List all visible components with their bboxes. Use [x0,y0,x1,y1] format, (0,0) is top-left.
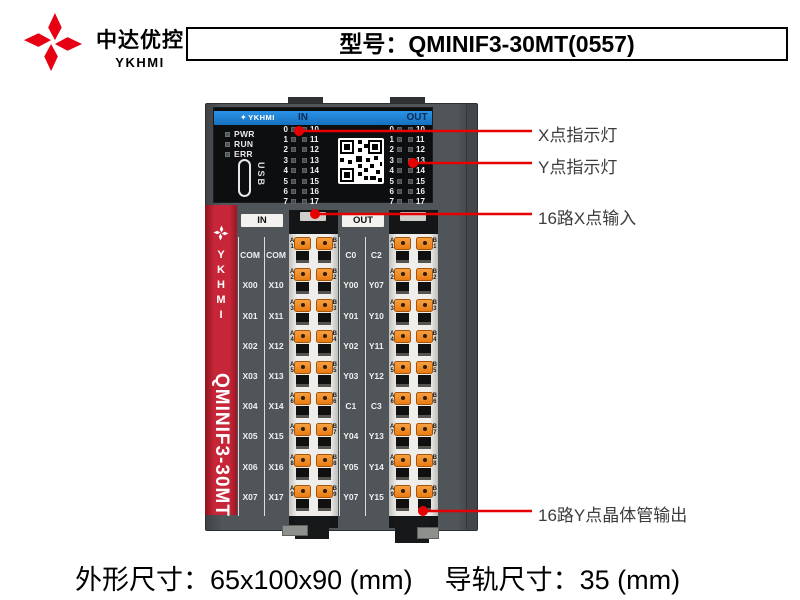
wire-clamp [316,299,333,329]
terminal-label-row: Y07 Y15 [338,482,389,512]
terminal-pin-label: B1 [433,239,437,250]
terminal-row: A5 B5 [389,360,438,391]
clamp-lever [416,454,433,467]
terminal-label: Y10 [364,311,390,321]
wire-clamp [416,299,433,329]
terminal-pin-label: A1 [390,239,394,250]
wire-clamp [294,361,311,391]
clamp-release-dot [323,334,327,338]
led-indicator-icon [291,168,296,173]
wire-hole [318,251,331,263]
terminal-label: COM [237,250,263,260]
led-indicator-icon [291,199,296,204]
wire-clamp [394,299,411,329]
led-number: 10 [416,125,432,134]
terminal-pin-label: B2 [433,270,437,281]
wire-clamp [294,423,311,453]
clamp-lever [294,299,311,312]
clamp-release-dot [323,396,327,400]
led-row: 2 12 [276,146,326,154]
terminal-label-row: X07 X17 [237,482,289,512]
led-indicator-icon [291,137,296,142]
led-number: 3 [382,156,394,165]
terminal-pin-label: A7 [290,425,294,436]
terminal-label-row: Y05 Y14 [338,452,389,482]
terminal-pin-label: B6 [433,394,437,405]
clamp-lever [416,237,433,250]
status-led-row: ERR [225,149,255,159]
led-number: 10 [310,125,326,134]
terminal-pin-label: A5 [390,363,394,374]
terminal-label-row: Y00 Y07 [338,270,389,300]
wire-clamp [394,392,411,422]
clamp-release-dot [423,334,427,338]
clamp-lever [416,361,433,374]
wire-hole [296,375,309,387]
terminal-pin-label: A6 [290,394,294,405]
led-indicator-icon [397,127,402,132]
wire-hole [396,499,409,511]
wire-hole [418,468,431,480]
terminal-label: X04 [237,401,263,411]
out-terminal-labels: OUT C0 C2 Y00 Y07 Y01 [338,210,389,516]
wire-hole [418,406,431,418]
led-number: 1 [276,135,288,144]
terminal-label: X02 [237,341,263,351]
terminal-row: A5 B5 [289,360,338,391]
clamp-lever [394,392,411,405]
led-number: 2 [276,145,288,154]
wire-clamp [416,392,433,422]
terminal-pin-label: B4 [433,332,437,343]
terminal-label: X11 [263,311,289,321]
wire-hole [396,313,409,325]
terminal-pin-label: B1 [333,239,337,250]
wire-hole [318,282,331,294]
led-indicator-icon [397,147,402,152]
led-number: 12 [416,145,432,154]
terminal-label: X17 [263,492,289,502]
led-row: 5 15 [276,177,326,185]
clamp-release-dot [401,303,405,307]
clamp-release-dot [423,489,427,493]
clamp-lever [316,423,333,436]
side-brand-label: YKHMI [215,249,227,324]
led-indicator-icon [291,127,296,132]
led-indicator-icon [291,147,296,152]
led-number: 3 [276,156,288,165]
panel-header-bar: ✦YKHMI IN OUT [214,111,432,125]
annotation-y-output: 16路Y点晶体管输出 [538,501,687,526]
led-indicator-icon [408,127,413,132]
led-number: 0 [276,125,288,134]
wire-hole [418,499,431,511]
panel-brand: ✦YKHMI [240,111,275,125]
terminal-label: C0 [338,250,364,260]
led-number: 1 [382,135,394,144]
usb-c-port [238,159,251,197]
clamp-release-dot [423,241,427,245]
wire-hole [318,468,331,480]
wire-hole [318,499,331,511]
led-number: 16 [416,187,432,196]
wire-hole [318,313,331,325]
wire-clamp [316,423,333,453]
wire-clamp [394,454,411,484]
terminal-cap-tab [300,212,326,221]
terminal-label: Y07 [338,492,364,502]
plc-device: ✦YKHMI IN OUT PWR RUN [205,97,478,545]
annotation-y-indicator: Y点指示灯 [538,153,617,178]
wire-clamp [316,392,333,422]
out-led-grid: 0 10 1 11 2 [382,125,432,206]
clamp-release-dot [401,365,405,369]
terminal-cap [389,210,438,234]
wire-hole [396,251,409,263]
terminal-pin-label: B9 [433,487,437,498]
clamp-release-dot [423,272,427,276]
clamp-lever [316,237,333,250]
terminal-pin-label: A1 [290,239,294,250]
in-column-header: IN [241,214,283,227]
led-row: 6 16 [382,188,432,196]
led-row: 7 17 [382,198,432,206]
clamp-lever [416,299,433,312]
clamp-lever [416,392,433,405]
wire-clamp [294,454,311,484]
clamp-release-dot [323,272,327,276]
plc-led-panel: ✦YKHMI IN OUT PWR RUN [213,107,433,203]
led-indicator-icon [408,158,413,163]
terminal-label: C3 [364,401,390,411]
terminal-label-row: X01 X11 [237,300,289,330]
clamp-release-dot [401,272,405,276]
led-indicator-icon [302,127,307,132]
terminal-row: A1 B1 [289,236,338,267]
terminal-pin-label: A2 [290,270,294,281]
led-row: 4 14 [276,167,326,175]
clamp-release-dot [423,427,427,431]
clamp-lever [416,268,433,281]
terminal-label: Y05 [338,462,364,472]
clamp-release-dot [323,489,327,493]
clamp-release-dot [301,241,305,245]
terminal-row: A8 B8 [289,453,338,484]
wire-clamp [316,330,333,360]
clamp-lever [316,392,333,405]
wire-hole [296,468,309,480]
terminal-label-row: Y03 Y12 [338,361,389,391]
terminal-row: A6 B6 [389,391,438,422]
wire-clamp [316,454,333,484]
terminal-label-row: Y01 Y10 [338,300,389,330]
wire-hole [418,251,431,263]
led-number: 6 [382,187,394,196]
led-number: 5 [276,177,288,186]
clamp-lever [294,454,311,467]
terminal-label-row: C0 C2 [338,240,389,270]
wire-hole [418,375,431,387]
led-number: 4 [276,166,288,175]
clamp-lever [416,330,433,343]
clamp-release-dot [423,303,427,307]
wire-clamp [416,237,433,267]
body-right-edge [467,104,477,530]
terminal-label: X15 [263,431,289,441]
led-indicator-icon [408,179,413,184]
terminal-row: A7 B7 [389,422,438,453]
clamp-release-dot [323,303,327,307]
wire-hole [296,251,309,263]
wire-hole [396,282,409,294]
terminal-pin-label: A9 [390,487,394,498]
terminal-pin-label: B8 [333,456,337,467]
clamp-release-dot [423,396,427,400]
wire-clamp [294,485,311,515]
led-number: 17 [416,197,432,206]
in-led-grid: 0 10 1 11 2 [276,125,326,206]
clamp-release-dot [301,427,305,431]
diamond-star-icon [213,225,229,241]
rail-dimensions: 导轨尺寸：35 (mm) [445,565,681,595]
led-number: 16 [310,187,326,196]
terminal-label-row: Y02 Y11 [338,331,389,361]
terminal-label-row: X02 X12 [237,331,289,361]
status-led-column: PWR RUN ERR [225,129,255,159]
clamp-lever [394,423,411,436]
terminal-pin-label: B3 [333,301,337,312]
terminal-row: A3 B3 [289,298,338,329]
led-number: 12 [310,145,326,154]
status-led-icon [225,132,230,137]
qr-code [338,138,384,184]
terminal-label: Y01 [338,311,364,321]
status-led-row: PWR [225,129,255,139]
terminal-pin-label: B7 [333,425,337,436]
led-indicator-icon [397,179,402,184]
clamp-lever [294,268,311,281]
clamp-lever [394,330,411,343]
y-output-terminal-block: A1 B1 A2 [389,210,438,528]
led-number: 6 [276,187,288,196]
led-row: 2 12 [382,146,432,154]
led-indicator-icon [397,158,402,163]
terminal-label: Y14 [364,462,390,472]
annotation-x-input: 16路X点输入 [538,204,636,229]
page: 中达优控 YKHMI 型号：QMINIF3-30MT(0557) ✦YKHMI … [0,0,800,600]
led-number: 15 [416,177,432,186]
wire-hole [396,375,409,387]
terminal-label-row: Y04 Y13 [338,421,389,451]
outline-dimensions: 外形尺寸：65x100x90 (mm) [75,565,413,595]
side-brand-strip: YKHMI QMINIF3-30MT [205,205,237,515]
clamp-lever [294,330,311,343]
wire-clamp [316,237,333,267]
wire-clamp [294,268,311,298]
status-led-icon [225,142,230,147]
led-number: 13 [310,156,326,165]
clamp-release-dot [301,489,305,493]
wire-hole [418,437,431,449]
clamp-release-dot [301,458,305,462]
clamp-release-dot [301,334,305,338]
status-led-label: ERR [234,149,253,159]
terminal-pin-label: A8 [290,456,294,467]
wire-clamp [294,330,311,360]
terminal-row: A9 B9 [389,484,438,515]
led-indicator-icon [408,168,413,173]
clamp-release-dot [401,334,405,338]
led-indicator-icon [302,147,307,152]
led-row: 7 17 [276,198,326,206]
panel-out-label: OUT [400,111,434,125]
led-number: 14 [310,166,326,175]
clamp-lever [394,454,411,467]
led-number: 7 [276,197,288,206]
terminal-row: A1 B1 [389,236,438,267]
clamp-lever [316,454,333,467]
terminal-label: Y02 [338,341,364,351]
led-indicator-icon [408,137,413,142]
terminal-label-row: C1 C3 [338,391,389,421]
status-led-label: RUN [234,139,253,149]
terminal-row: A4 B4 [289,329,338,360]
led-row: 1 11 [276,135,326,143]
terminal-row: A2 B2 [389,267,438,298]
terminal-pin-label: B5 [433,363,437,374]
terminal-label: Y04 [338,431,364,441]
clamp-release-dot [301,396,305,400]
clamp-release-dot [401,396,405,400]
terminal-pin-label: A8 [390,456,394,467]
led-number: 13 [416,156,432,165]
wire-hole [396,406,409,418]
wire-hole [318,375,331,387]
led-indicator-icon [397,168,402,173]
wire-clamp [394,423,411,453]
brand-text: 中达优控 YKHMI [92,24,188,70]
wire-hole [418,344,431,356]
wire-clamp [394,485,411,515]
wire-hole [418,313,431,325]
terminal-pin-label: B8 [433,456,437,467]
clamp-lever [294,423,311,436]
terminal-label: X03 [237,371,263,381]
wire-hole [318,344,331,356]
led-number: 2 [382,145,394,154]
terminal-row: A9 B9 [289,484,338,515]
brand-name-cn: 中达优控 [92,24,188,54]
led-number: 0 [382,125,394,134]
terminal-label: C2 [364,250,390,260]
led-indicator-icon [408,189,413,194]
clamp-release-dot [401,241,405,245]
led-indicator-icon [291,158,296,163]
led-number: 17 [310,197,326,206]
terminal-label-row: X06 X16 [237,452,289,482]
led-number: 5 [382,177,394,186]
led-row: 3 13 [382,156,432,164]
wire-clamp [316,361,333,391]
terminal-label-row: X00 X10 [237,270,289,300]
led-number: 7 [382,197,394,206]
brand-logo-icon [22,10,84,74]
diamond-star-icon: ✦ [240,113,247,122]
led-indicator-icon [302,158,307,163]
terminal-pin-label: B7 [433,425,437,436]
wire-hole [396,468,409,480]
terminal-label: X14 [263,401,289,411]
terminal-pin-label: A4 [390,332,394,343]
terminal-label: X01 [237,311,263,321]
clamp-lever [294,392,311,405]
panel-in-label: IN [288,111,318,125]
led-indicator-icon [302,137,307,142]
din-rail-foot [417,527,439,539]
clamp-lever [416,423,433,436]
terminal-row: A7 B7 [289,422,338,453]
usb-label: USB [256,162,266,187]
terminal-row: A6 B6 [289,391,338,422]
terminal-label: Y07 [364,280,390,290]
led-row: 0 10 [276,125,326,133]
led-number: 11 [310,135,326,144]
terminal-label-row: X04 X14 [237,391,289,421]
clamp-lever [294,237,311,250]
wire-hole [296,344,309,356]
clamp-lever [416,485,433,498]
clamp-lever [316,485,333,498]
wire-clamp [394,237,411,267]
terminal-label: Y13 [364,431,390,441]
terminal-label: X10 [263,280,289,290]
led-number: 4 [382,166,394,175]
led-row: 1 11 [382,135,432,143]
terminal-label: X06 [237,462,263,472]
led-row: 6 16 [276,188,326,196]
x-input-terminal-block: A1 B1 A2 [289,210,338,528]
wire-clamp [316,485,333,515]
terminal-pin-label: B2 [333,270,337,281]
status-led-row: RUN [225,139,255,149]
terminal-pin-label: B9 [333,487,337,498]
terminal-pin-label: A9 [290,487,294,498]
wire-hole [296,313,309,325]
wire-clamp [416,423,433,453]
terminal-label-row: COM COM [237,240,289,270]
terminal-pin-label: A7 [390,425,394,436]
led-indicator-icon [408,147,413,152]
clamp-lever [394,361,411,374]
clamp-release-dot [323,458,327,462]
terminal-pin-label: A5 [290,363,294,374]
terminal-label-row: X03 X13 [237,361,289,391]
brand-name-en: YKHMI [92,55,188,70]
terminal-pin-label: B4 [333,332,337,343]
clamp-lever [394,268,411,281]
terminal-pin-label: B6 [333,394,337,405]
clamp-release-dot [301,303,305,307]
terminal-label: X00 [237,280,263,290]
terminal-row: A8 B8 [389,453,438,484]
wire-clamp [394,268,411,298]
annotation-x-indicator: X点指示灯 [538,121,617,146]
terminal-label-row: X05 X15 [237,421,289,451]
clamp-release-dot [323,241,327,245]
led-indicator-icon [291,179,296,184]
terminal-label: X13 [263,371,289,381]
led-indicator-icon [291,189,296,194]
